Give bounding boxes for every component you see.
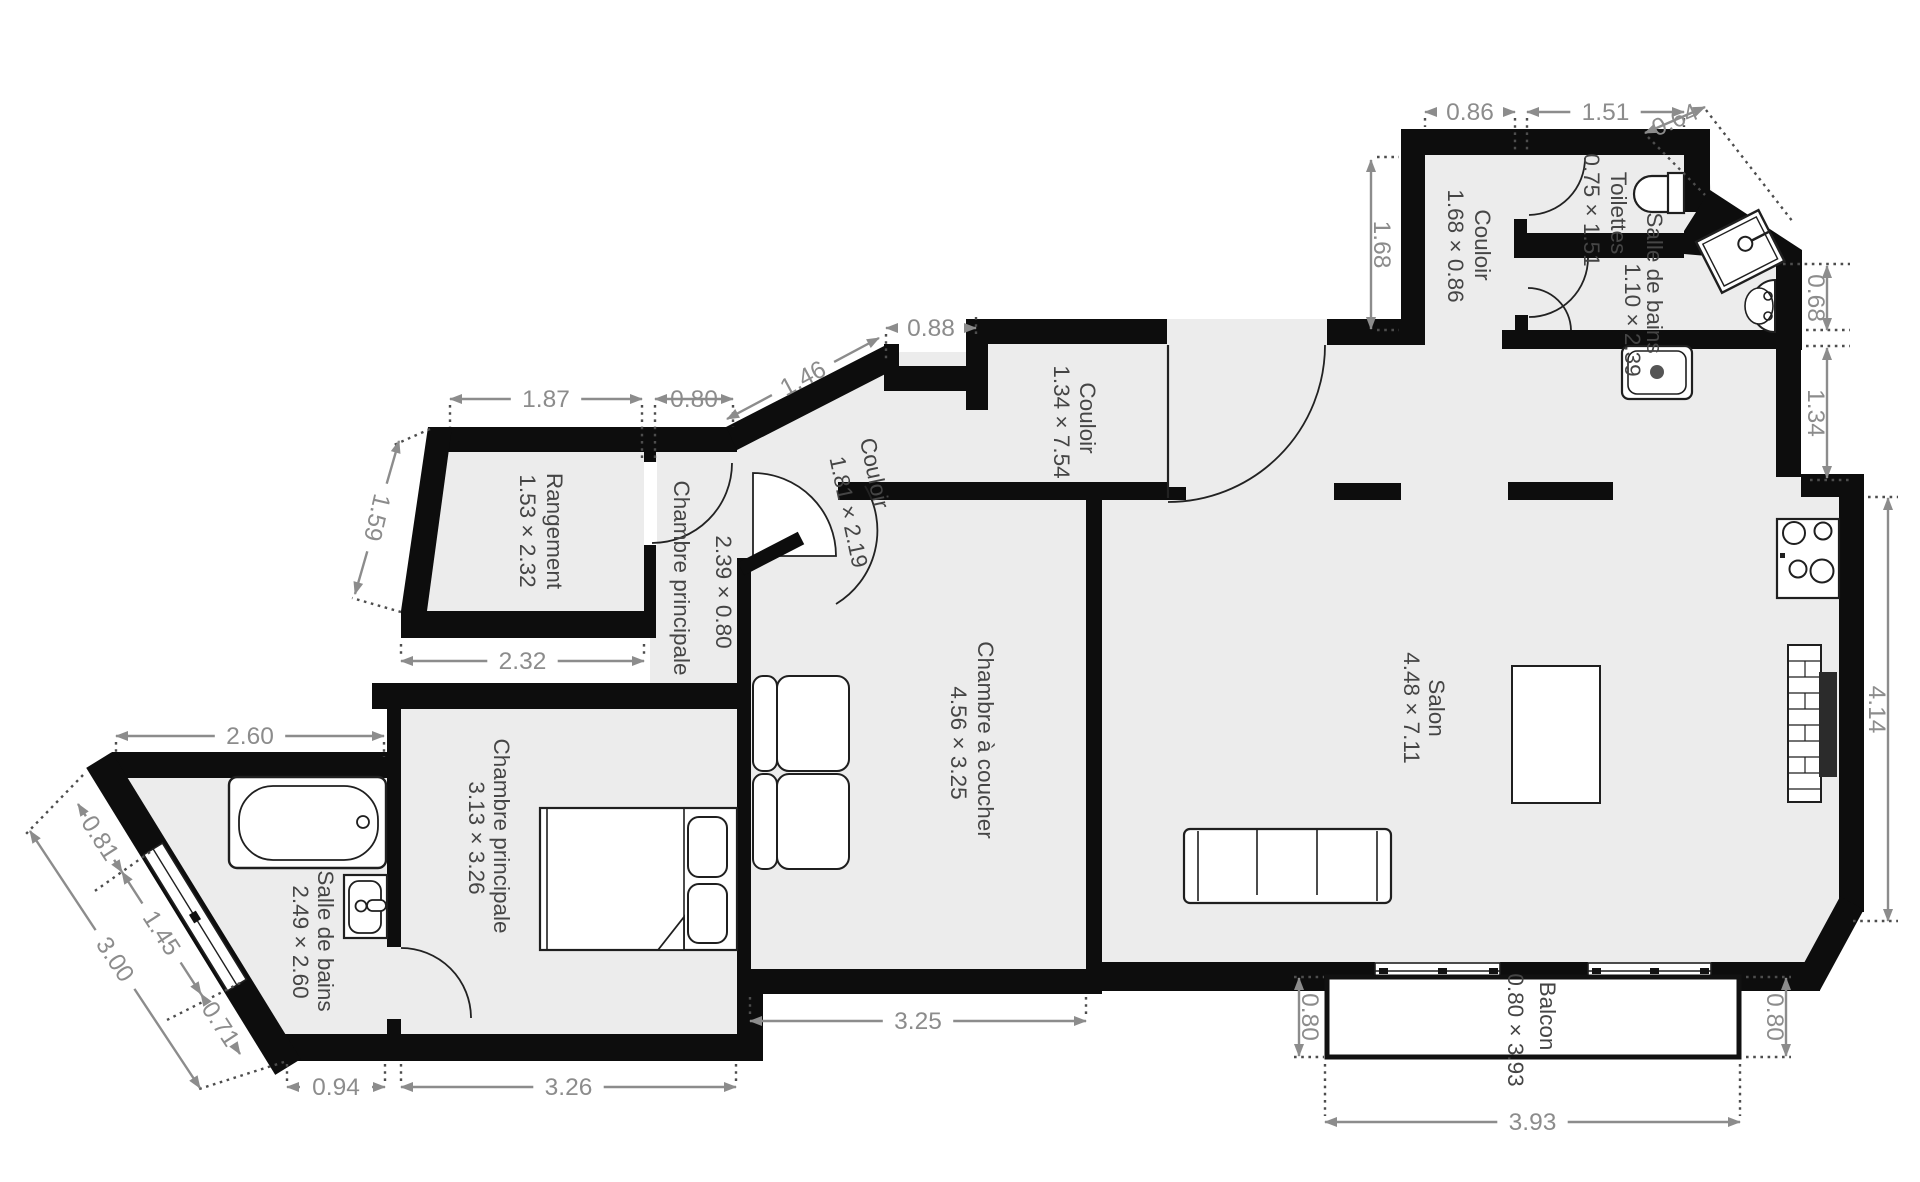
svg-text:3.25: 3.25 [894,1008,942,1035]
svg-text:Salon: Salon [1424,679,1449,737]
svg-text:Couloir: Couloir [1470,209,1495,281]
svg-text:4.14: 4.14 [1863,686,1890,734]
svg-text:Chambre à coucher: Chambre à coucher [973,641,998,839]
svg-text:4.48 × 7.11: 4.48 × 7.11 [1399,652,1424,764]
svg-text:0.75 × 1.51: 0.75 × 1.51 [1579,153,1604,266]
svg-text:Toilettes: Toilettes [1606,172,1631,255]
svg-text:4.56 × 3.25: 4.56 × 3.25 [946,686,971,799]
svg-text:1.51: 1.51 [1582,99,1630,126]
svg-text:0.88: 0.88 [907,315,955,342]
svg-text:3.13 × 3.26: 3.13 × 3.26 [464,781,489,894]
svg-text:2.49 × 2.60: 2.49 × 2.60 [288,885,313,998]
svg-text:Couloir: Couloir [1075,382,1100,454]
svg-text:2.60: 2.60 [226,723,274,750]
svg-text:1.53 × 2.32: 1.53 × 2.32 [515,474,540,587]
svg-text:0.80 × 3.93: 0.80 × 3.93 [1503,973,1528,1086]
svg-text:3.26: 3.26 [545,1074,593,1101]
svg-text:0.80: 0.80 [670,386,718,413]
svg-text:1.68 × 0.86: 1.68 × 0.86 [1443,189,1468,302]
svg-text:2.32: 2.32 [499,648,547,675]
svg-text:1.68: 1.68 [1368,221,1395,269]
svg-text:0.68: 0.68 [1802,274,1829,322]
svg-text:1.34 × 7.54: 1.34 × 7.54 [1049,365,1074,478]
svg-text:0.86: 0.86 [1446,99,1494,126]
svg-text:2.39 × 0.80: 2.39 × 0.80 [711,535,736,648]
svg-text:1.10 × 2.39: 1.10 × 2.39 [1620,263,1645,376]
svg-text:3.93: 3.93 [1509,1109,1557,1136]
svg-text:Rangement: Rangement [542,473,567,590]
svg-text:Chambre principale: Chambre principale [489,738,514,933]
svg-text:Chambre principale: Chambre principale [669,480,694,675]
svg-text:Balcon: Balcon [1535,982,1560,1051]
svg-text:0.80: 0.80 [1761,993,1788,1041]
svg-text:0.80: 0.80 [1296,993,1323,1041]
svg-text:1.34: 1.34 [1802,389,1829,437]
svg-text:1.87: 1.87 [522,386,570,413]
svg-text:0.94: 0.94 [312,1074,360,1101]
svg-text:Salle de bains: Salle de bains [313,870,338,1011]
